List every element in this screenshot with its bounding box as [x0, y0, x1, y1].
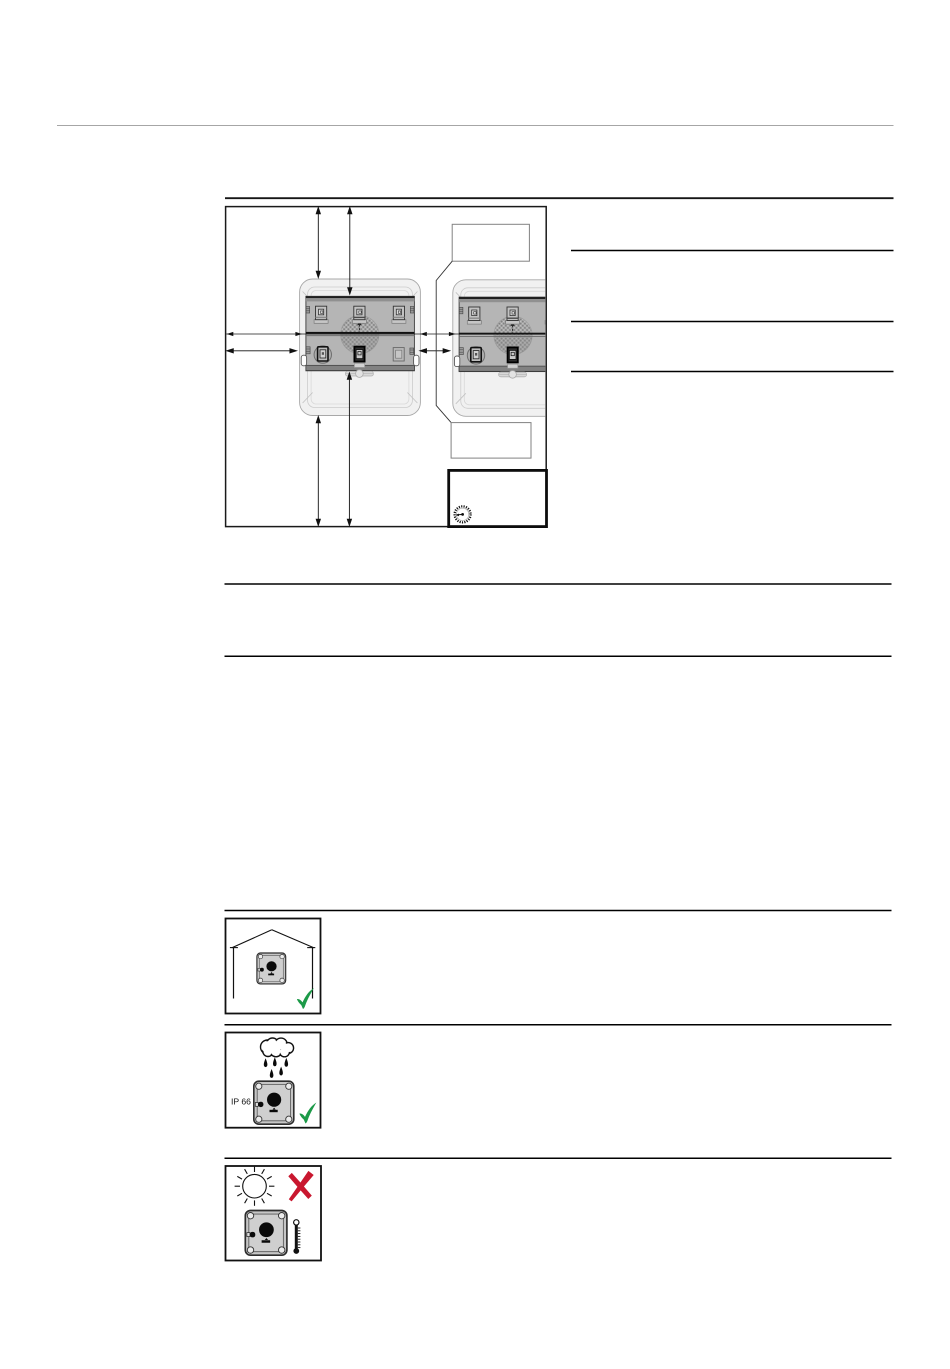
- svg-text:IP 66: IP 66: [231, 1096, 251, 1106]
